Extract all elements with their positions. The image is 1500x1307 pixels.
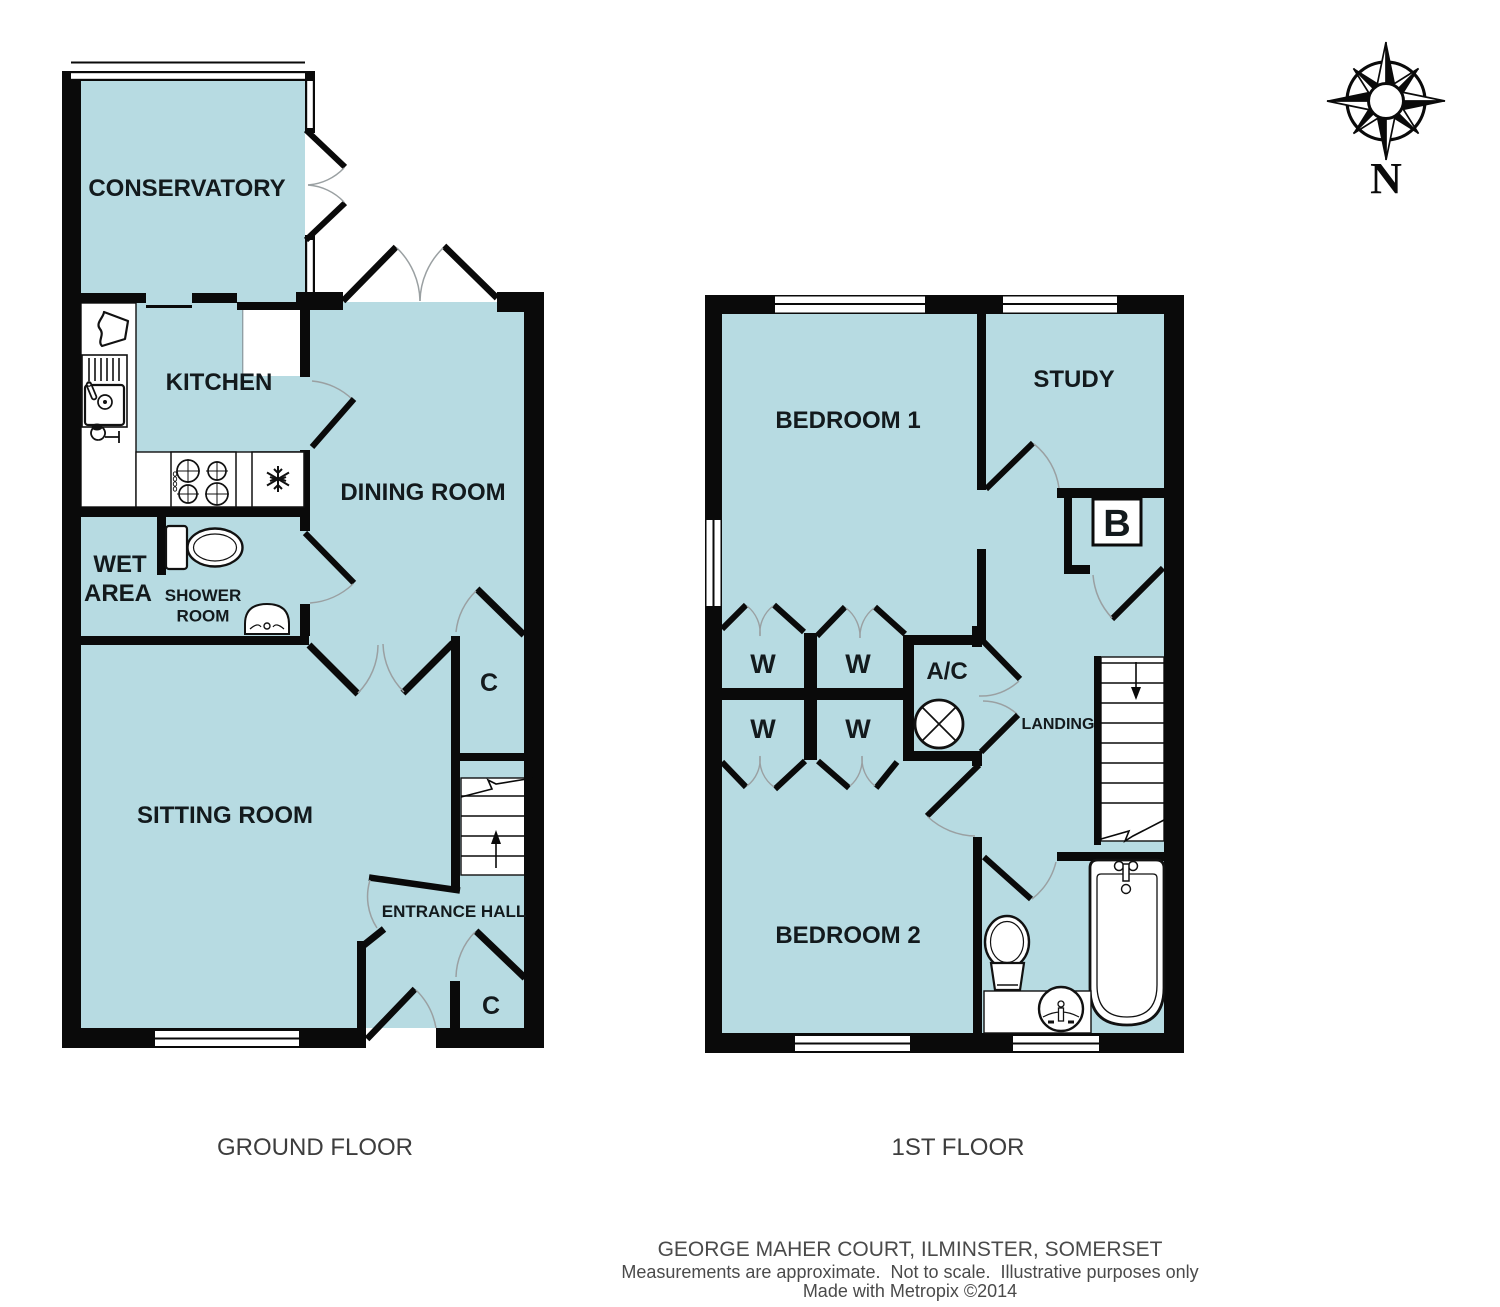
svg-text:SHOWER: SHOWER [165,586,242,605]
svg-text:STUDY: STUDY [1033,366,1114,393]
svg-text:W: W [750,714,776,744]
svg-text:BEDROOM 1: BEDROOM 1 [775,407,920,434]
svg-text:W: W [845,649,871,679]
svg-text:BEDROOM 2: BEDROOM 2 [775,922,920,949]
svg-text:ROOM: ROOM [177,607,230,626]
svg-text:C: C [480,669,498,697]
svg-text:W: W [845,714,871,744]
svg-text:CONSERVATORY: CONSERVATORY [88,175,285,202]
svg-text:SITTING ROOM: SITTING ROOM [137,802,313,829]
svg-text:GROUND FLOOR: GROUND FLOOR [217,1134,413,1161]
svg-text:Measurements are approximate.: Measurements are approximate. Not to sca… [621,1262,1198,1282]
svg-text:A/C: A/C [926,658,967,685]
svg-text:GEORGE MAHER COURT, ILMINSTER,: GEORGE MAHER COURT, ILMINSTER, SOMERSET [658,1238,1163,1261]
svg-text:W: W [750,649,776,679]
svg-text:B: B [1103,503,1130,545]
svg-text:LANDING: LANDING [1022,716,1095,733]
svg-text:Made with Metropix ©2014: Made with Metropix ©2014 [803,1281,1017,1301]
svg-text:1ST FLOOR: 1ST FLOOR [892,1134,1025,1161]
svg-text:WET: WET [93,551,147,578]
svg-text:C: C [482,992,500,1020]
svg-text:AREA: AREA [84,580,152,607]
svg-text:N: N [1370,154,1402,203]
svg-text:ENTRANCE HALL: ENTRANCE HALL [382,902,527,921]
svg-text:DINING ROOM: DINING ROOM [340,479,505,506]
svg-text:KITCHEN: KITCHEN [166,369,273,396]
